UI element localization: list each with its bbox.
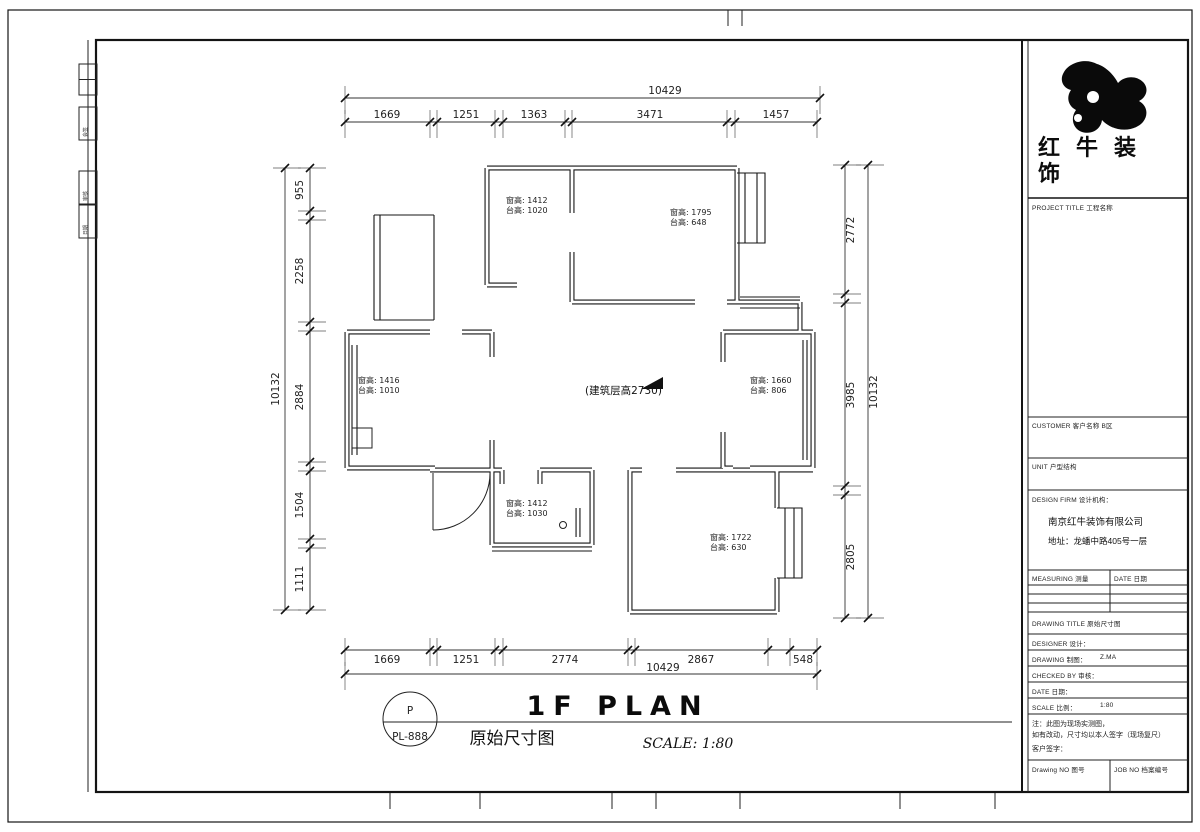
sheet-title-group: P PL-888 1F PLAN 原始尺寸图 SCALE: 1:80 — [383, 691, 1012, 752]
dim-left-overall: 10132 — [270, 372, 282, 405]
dim-left-1: 955 — [294, 180, 306, 200]
dim-left-4: 1504 — [294, 491, 306, 518]
dim-left-2: 2258 — [294, 258, 306, 285]
checked-label: CHECKED BY 审核： — [1032, 670, 1098, 680]
dim-right-3: 2805 — [845, 544, 857, 571]
signoff-cell-1: 会签 — [82, 127, 89, 137]
window-label-3a: 窗高: 1416 — [358, 375, 400, 385]
project-title-label: PROJECT TITLE 工程名称 — [1032, 202, 1113, 212]
firm-label: DESIGN FIRM 设计机构： — [1032, 494, 1112, 504]
dim-left-5: 1111 — [294, 566, 306, 593]
date-label: DATE 日期： — [1032, 686, 1072, 696]
notes-line-1: 注：此图为现场实测图， — [1032, 719, 1109, 729]
window-label-1a: 窗高: 1412 — [506, 195, 548, 205]
window-label-4b: 台高: 806 — [750, 385, 787, 395]
notes-line-2: 如有改动，尺寸均以本人签字（现场复尺） — [1032, 730, 1165, 740]
dim-bot-1: 1669 — [374, 654, 401, 666]
window-label-5a: 窗高: 1412 — [506, 498, 548, 508]
floor-height-note: (建筑层高2730) — [585, 377, 663, 397]
fold-ticks — [390, 10, 995, 809]
window-label-1b: 台高: 1020 — [506, 205, 548, 215]
signoff-cell-3: 日期 — [82, 225, 89, 235]
dim-top-5: 1457 — [763, 109, 790, 121]
job-no-label: JOB NO 档案编号 — [1114, 764, 1168, 774]
dim-top-2: 1251 — [453, 109, 480, 121]
drawing-sheet: 10429 1669 1251 1363 3471 1457 1669 1251… — [0, 0, 1200, 832]
window-label-2b: 台高: 648 — [670, 217, 707, 227]
dim-right-1: 2772 — [845, 217, 857, 244]
bubble-letter: P — [407, 705, 413, 717]
window-label-6b: 台高: 630 — [710, 542, 747, 552]
window-label-5b: 台高: 1030 — [506, 508, 548, 518]
signoff-cell-2: 审核 — [82, 191, 89, 201]
dim-right-2: 3985 — [845, 382, 857, 409]
window-label-2a: 窗高: 1795 — [670, 207, 712, 217]
entry-door-arc — [433, 473, 490, 530]
measure-date-label: DATE 日期 — [1114, 573, 1147, 583]
window-label-6a: 窗高: 1722 — [710, 532, 752, 542]
customer-label: CUSTOMER 客户名称 B区 — [1032, 420, 1113, 430]
elevation-marker-icon — [641, 377, 663, 389]
window-label-3b: 台高: 1010 — [358, 385, 400, 395]
drawing-label: DRAWING 制图： — [1032, 654, 1087, 664]
measure-label: MEASURING 测量 — [1032, 573, 1089, 583]
designer-label: DESIGNER 设计： — [1032, 638, 1090, 648]
drawing-title-label: DRAWING TITLE 原始尺寸图 — [1032, 618, 1121, 628]
drawing-value: Z.MA — [1100, 654, 1116, 661]
sheet-title-en: 1F PLAN — [526, 691, 709, 722]
window-annotations: 窗高: 1412 台高: 1020 窗高: 1795 台高: 648 窗高: 1… — [358, 195, 792, 552]
dim-bottom-overall: 10429 — [646, 662, 679, 674]
dim-top-overall: 10429 — [648, 85, 681, 97]
dim-bot-5: 548 — [793, 654, 813, 666]
scale-value: 1:80 — [1100, 702, 1113, 709]
bubble-drawing-no: PL-888 — [392, 731, 428, 743]
notes-line-3: 客户签字： — [1032, 744, 1067, 754]
dim-bot-2: 1251 — [453, 654, 480, 666]
sheet-title-cn: 原始尺寸图 — [470, 729, 555, 749]
window-label-4a: 窗高: 1660 — [750, 375, 792, 385]
dim-right-overall: 10132 — [868, 375, 880, 408]
firm-name: 南京红牛装饰有限公司 — [1048, 514, 1143, 528]
sheet-scale: SCALE: 1:80 — [643, 736, 734, 752]
firm-address: 地址：龙蟠中路405号一层 — [1048, 535, 1147, 547]
company-name-line1: 红牛装 — [1038, 136, 1168, 162]
dim-top-1: 1669 — [374, 109, 401, 121]
company-name-line2: 饰 — [1038, 162, 1168, 188]
scale-label: SCALE 比例： — [1032, 702, 1076, 712]
company-name: 红牛装 饰 — [1038, 136, 1168, 188]
drawing-no-label: Drawing NO 图号 — [1032, 764, 1085, 774]
dim-top-3: 1363 — [521, 109, 548, 121]
floor-plan-svg: 10429 1669 1251 1363 3471 1457 1669 1251… — [0, 0, 1200, 832]
dim-bot-3: 2774 — [552, 654, 579, 666]
company-logo-icon — [1062, 61, 1147, 133]
dim-bot-4: 2867 — [688, 654, 715, 666]
dim-left-3: 2884 — [294, 383, 306, 410]
layout-label: UNIT 户型结构 — [1032, 461, 1077, 471]
dim-top-4: 3471 — [637, 109, 664, 121]
